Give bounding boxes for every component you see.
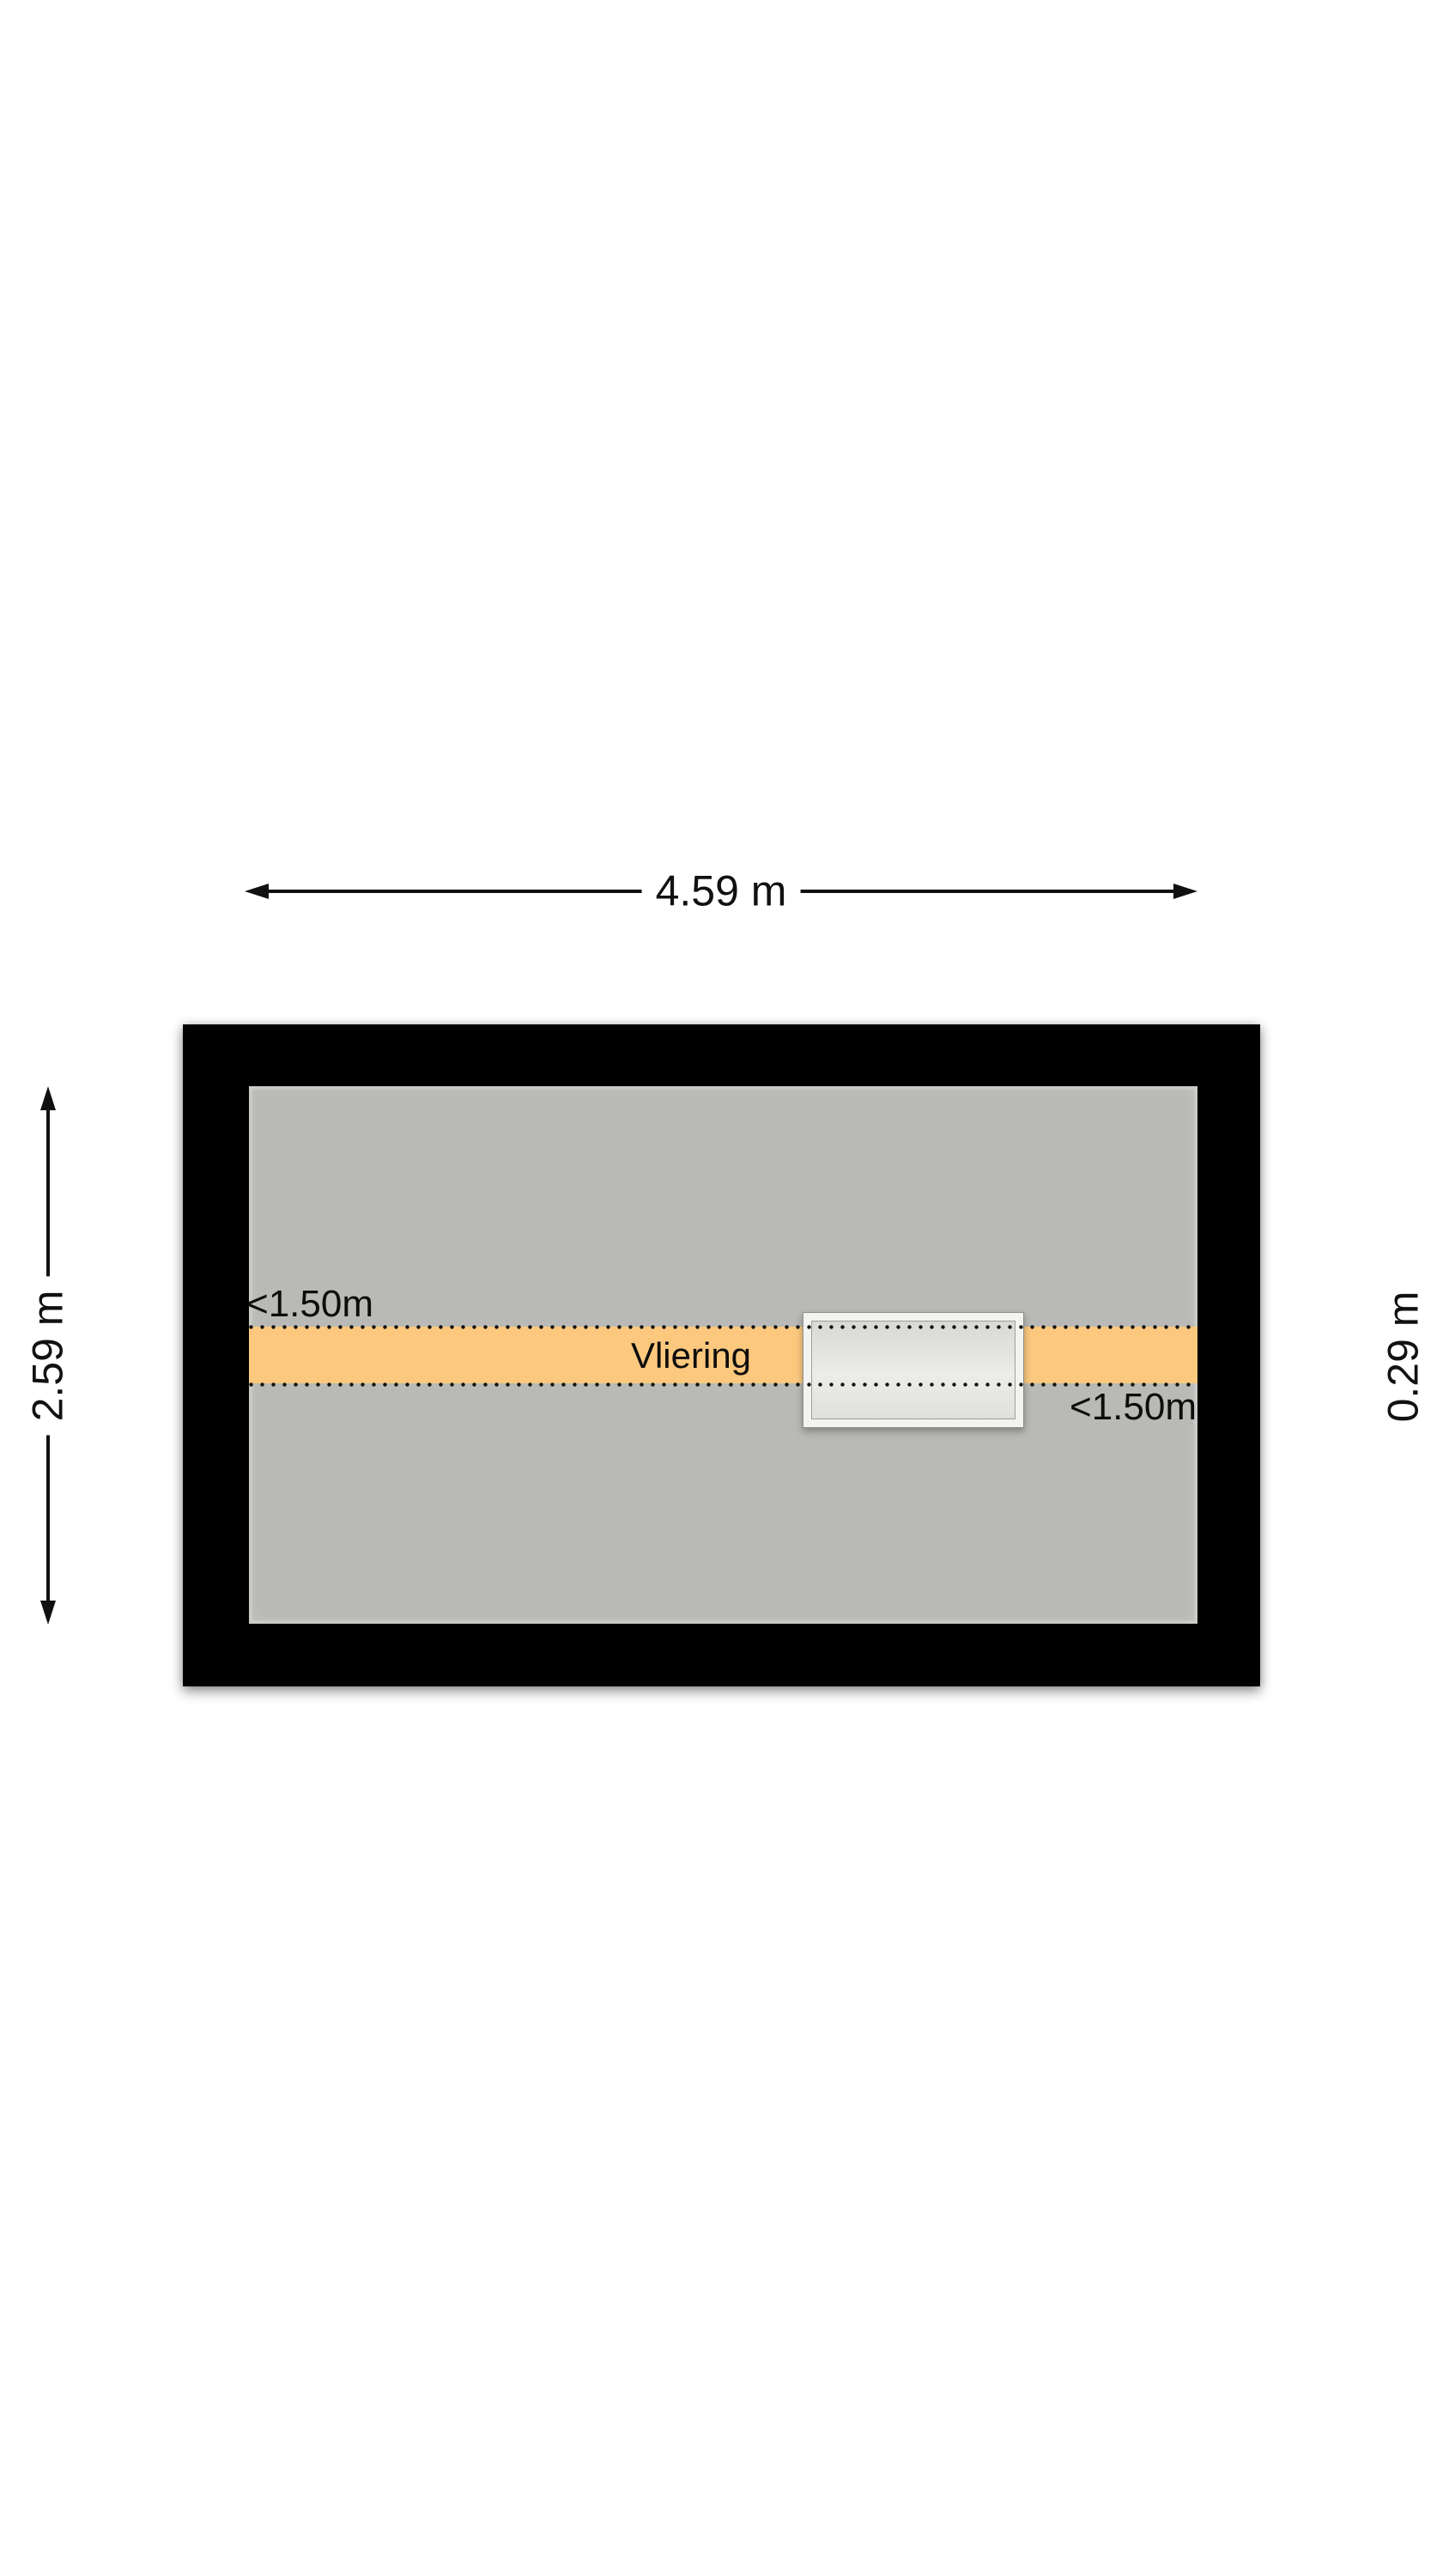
clearance-label-bottom-right: <1.50m	[1070, 1388, 1197, 1426]
arrowhead-right-icon	[1173, 884, 1197, 899]
outer-walls: Vliering <1.50m <1.50m	[183, 1024, 1260, 1686]
dimension-width: 4.59 m	[245, 872, 1197, 910]
clearance-label-top-left: <1.50m	[246, 1285, 373, 1323]
loft-hatch	[803, 1312, 1024, 1428]
loft-hatch-opening	[811, 1321, 1016, 1419]
clearance-dotted-line-top	[249, 1325, 1197, 1329]
arrowhead-down-icon	[40, 1601, 56, 1625]
clearance-dotted-line-bottom	[249, 1382, 1197, 1387]
dimension-height: 2.59 m	[29, 1086, 67, 1625]
dimension-height-label: 2.59 m	[25, 1276, 72, 1435]
floor: Vliering <1.50m <1.50m	[249, 1086, 1197, 1624]
dimension-right-offset-label: 0.29 m	[1380, 1291, 1428, 1423]
dimension-width-label: 4.59 m	[642, 868, 801, 915]
room-label: Vliering	[631, 1338, 751, 1374]
floorplan-canvas: 4.59 m 2.59 m 0.29 m Vliering <1.50m <1.…	[0, 0, 1449, 2576]
